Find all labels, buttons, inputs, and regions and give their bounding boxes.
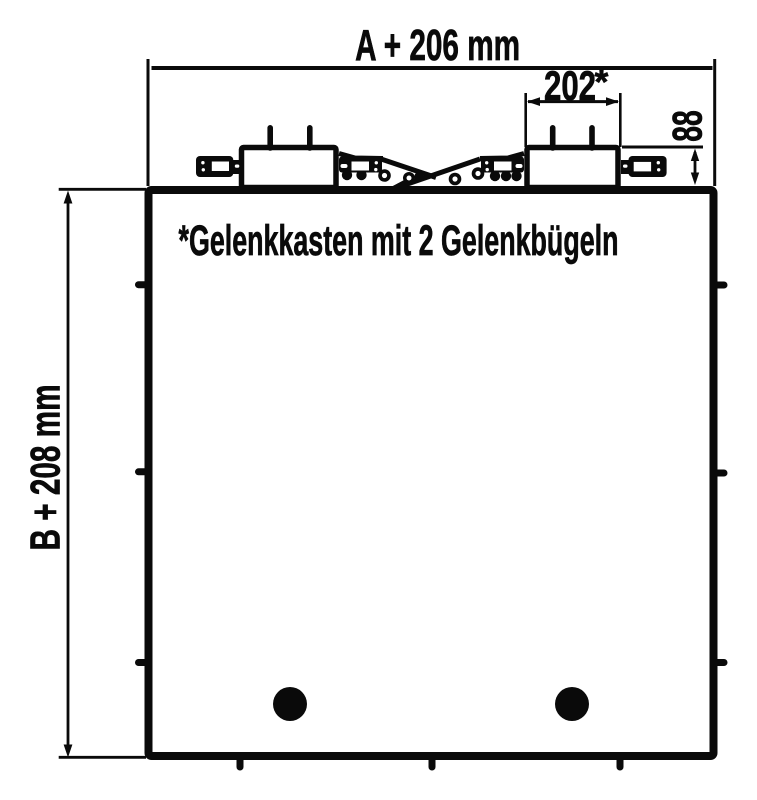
svg-text:*Gelenkkasten mit 2 Gelenkbüge: *Gelenkkasten mit 2 Gelenkbügeln [179,218,619,265]
svg-text:*: * [595,62,609,102]
svg-text:A + 206 mm: A + 206 mm [355,22,520,70]
svg-text:B + 208 mm: B + 208 mm [22,385,69,551]
svg-text:202: 202 [544,63,596,109]
svg-text:88: 88 [664,110,711,142]
